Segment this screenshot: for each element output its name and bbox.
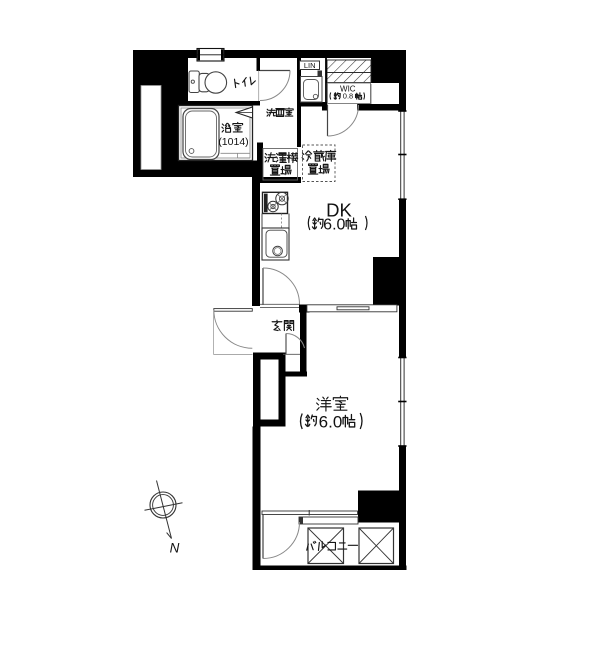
- svg-text:0.8: 0.8: [343, 91, 353, 100]
- svg-text:6.0: 6.0: [319, 413, 343, 432]
- svg-text:N: N: [170, 541, 180, 556]
- svg-text:6.0: 6.0: [323, 217, 345, 234]
- svg-text:LIN: LIN: [304, 61, 316, 70]
- svg-text:(1014): (1014): [218, 136, 248, 148]
